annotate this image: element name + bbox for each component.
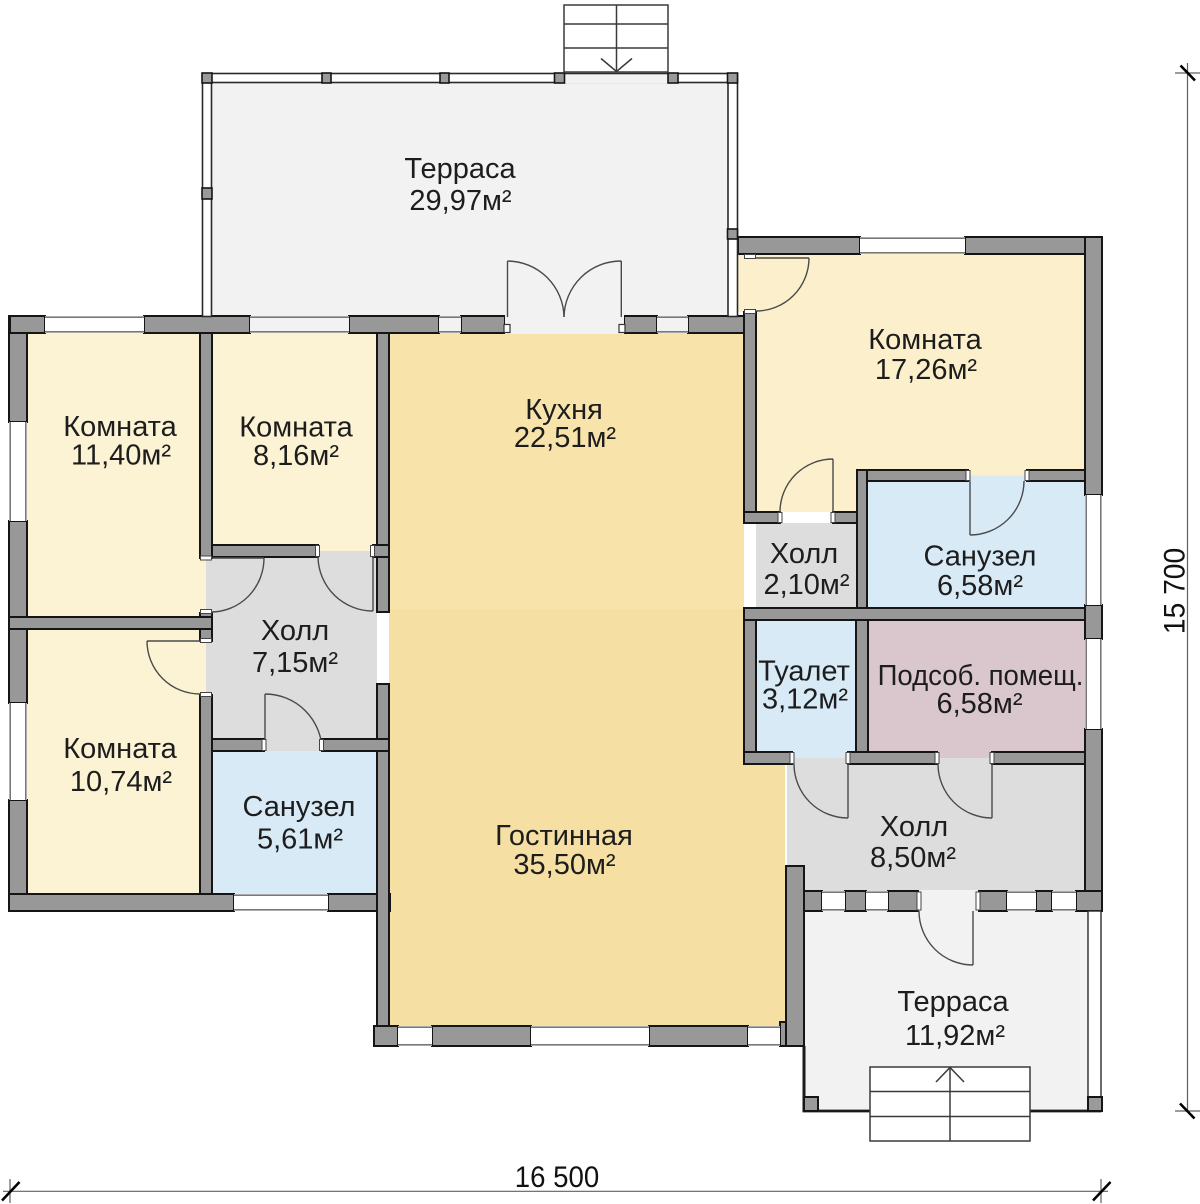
svg-text:Гостинная: Гостинная (495, 820, 633, 852)
svg-text:Подсоб. помещ.: Подсоб. помещ. (878, 658, 1084, 691)
svg-text:16 500: 16 500 (515, 1161, 599, 1194)
svg-text:Холл: Холл (261, 615, 329, 647)
svg-text:11,92м²: 11,92м² (905, 1020, 1005, 1052)
svg-text:6,58м²: 6,58м² (936, 688, 1022, 720)
svg-text:7,15м²: 7,15м² (252, 647, 338, 679)
svg-text:22,51м²: 22,51м² (514, 422, 617, 454)
svg-text:Комната: Комната (63, 733, 177, 765)
svg-text:15 700: 15 700 (1159, 548, 1192, 634)
svg-text:8,50м²: 8,50м² (870, 842, 956, 874)
svg-text:29,97м²: 29,97м² (409, 185, 512, 217)
svg-text:Комната: Комната (63, 411, 177, 443)
svg-text:8,16м²: 8,16м² (253, 440, 339, 472)
svg-text:Комната: Комната (868, 324, 982, 356)
svg-text:Терраса: Терраса (897, 986, 1009, 1018)
svg-text:Холл: Холл (880, 811, 948, 843)
svg-text:35,50м²: 35,50м² (513, 849, 616, 881)
svg-text:Терраса: Терраса (404, 153, 516, 185)
svg-text:11,40м²: 11,40м² (71, 440, 171, 472)
svg-text:2,10м²: 2,10м² (763, 569, 849, 601)
svg-text:Санузел: Санузел (243, 791, 356, 823)
svg-text:17,26м²: 17,26м² (875, 354, 978, 386)
svg-text:5,61м²: 5,61м² (257, 824, 343, 856)
svg-text:Комната: Комната (239, 412, 353, 444)
svg-text:6,58м²: 6,58м² (937, 570, 1023, 602)
svg-text:3,12м²: 3,12м² (762, 684, 848, 716)
svg-text:10,74м²: 10,74м² (70, 766, 173, 798)
svg-text:Санузел: Санузел (924, 541, 1037, 573)
svg-text:Холл: Холл (770, 538, 838, 570)
